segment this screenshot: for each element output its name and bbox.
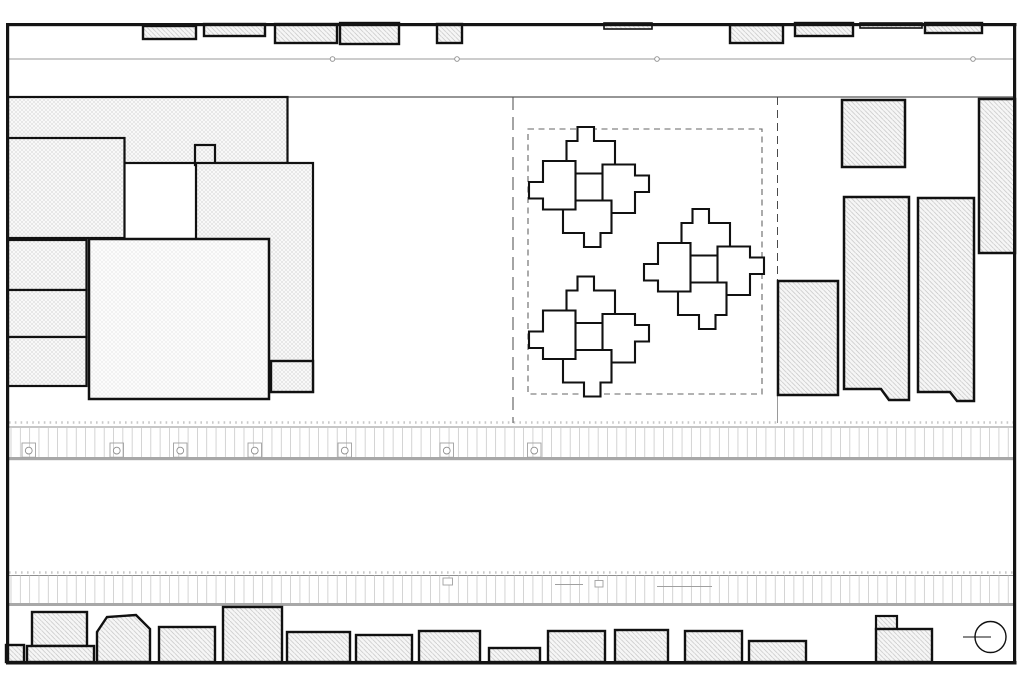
building-annex — [271, 361, 313, 392]
row-building — [8, 290, 87, 337]
slab-building — [918, 198, 974, 401]
street-building — [876, 616, 897, 629]
street-lines — [8, 57, 1013, 97]
street-building — [223, 607, 282, 662]
pavement-fixture — [443, 578, 453, 585]
curb-band — [9, 603, 1016, 606]
street-building — [685, 631, 742, 662]
street-building — [27, 646, 94, 662]
street-building — [419, 631, 480, 662]
existing-block-west — [8, 97, 314, 399]
utility-marker — [971, 57, 976, 62]
street-building — [32, 612, 87, 646]
north-symbol-group — [963, 622, 1006, 653]
street-building — [356, 635, 412, 662]
cross-building-clusters — [529, 127, 764, 397]
cross-building — [529, 311, 576, 360]
street-building — [730, 25, 783, 43]
building-footprint — [979, 99, 1015, 253]
street-building — [97, 615, 150, 662]
row-building — [8, 240, 87, 290]
street-building — [489, 648, 540, 662]
slab-building — [844, 197, 909, 400]
cross-building — [529, 161, 576, 210]
tree-pit-circle — [251, 447, 258, 454]
utility-marker — [330, 57, 335, 62]
frame-bottom — [6, 661, 1017, 665]
street-building — [615, 630, 668, 662]
street-building — [275, 24, 337, 43]
frame-top — [6, 23, 1017, 26]
frame-left — [6, 23, 9, 665]
street-building — [876, 629, 932, 662]
tree-pit-circle — [113, 447, 120, 454]
street-building — [143, 26, 196, 39]
buildings-bottom-row — [6, 607, 932, 662]
street-building — [749, 641, 806, 662]
street-building — [548, 631, 605, 662]
courtyard-building — [89, 239, 269, 399]
tree-pit-circle — [341, 447, 348, 454]
street-building — [159, 627, 215, 662]
tree-pit-circle — [531, 447, 538, 454]
pavement-band-south — [9, 573, 1016, 607]
curb-band — [9, 457, 1016, 460]
site-plan-drawing — [0, 0, 1024, 682]
building-footprint — [842, 100, 905, 167]
row-building — [8, 337, 87, 386]
site-plan-page — [0, 0, 1024, 682]
pavement-fixture — [595, 581, 603, 588]
tree-pit-circle — [25, 447, 32, 454]
building-footprint — [8, 138, 125, 238]
building-footprint — [778, 281, 838, 395]
plan-root — [6, 23, 1017, 665]
tree-pit-circle — [177, 447, 184, 454]
cross-building — [644, 243, 691, 292]
street-building — [437, 24, 462, 43]
utility-marker — [655, 57, 660, 62]
tree-pit-circle — [443, 447, 450, 454]
frame-right — [1013, 23, 1016, 665]
street-building — [287, 632, 350, 662]
pavement-band-north — [9, 423, 1016, 461]
buildings-east — [778, 99, 1015, 401]
utility-marker — [455, 57, 460, 62]
